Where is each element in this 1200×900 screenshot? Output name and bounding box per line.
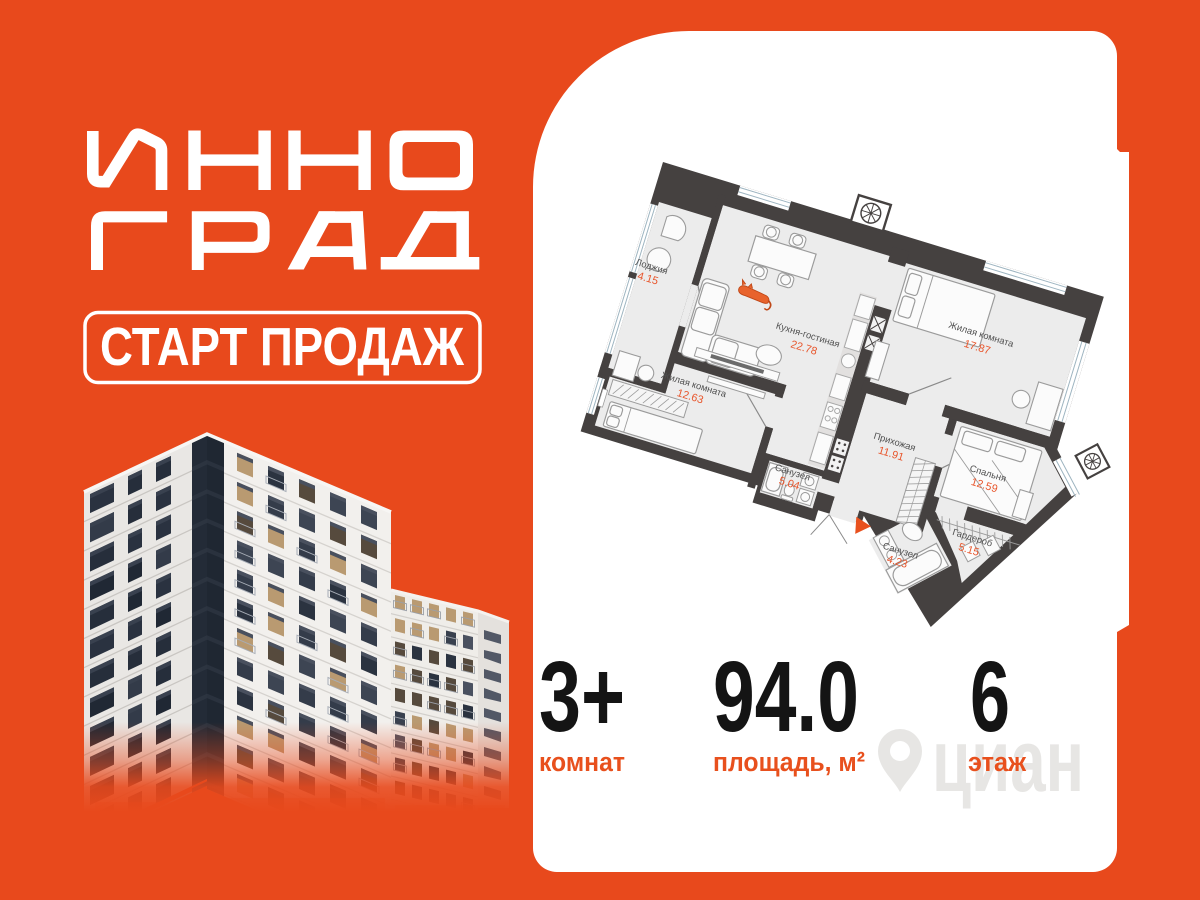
svg-text:94.0: 94.0: [713, 641, 859, 753]
svg-text:3+: 3+: [539, 641, 625, 753]
svg-text:6: 6: [970, 641, 1010, 753]
svg-text:площадь, м²: площадь, м²: [713, 747, 865, 777]
svg-text:СТАРТ ПРОДАЖ: СТАРТ ПРОДАЖ: [100, 317, 465, 377]
svg-text:этаж: этаж: [968, 747, 1027, 777]
svg-text:комнат: комнат: [539, 747, 625, 777]
